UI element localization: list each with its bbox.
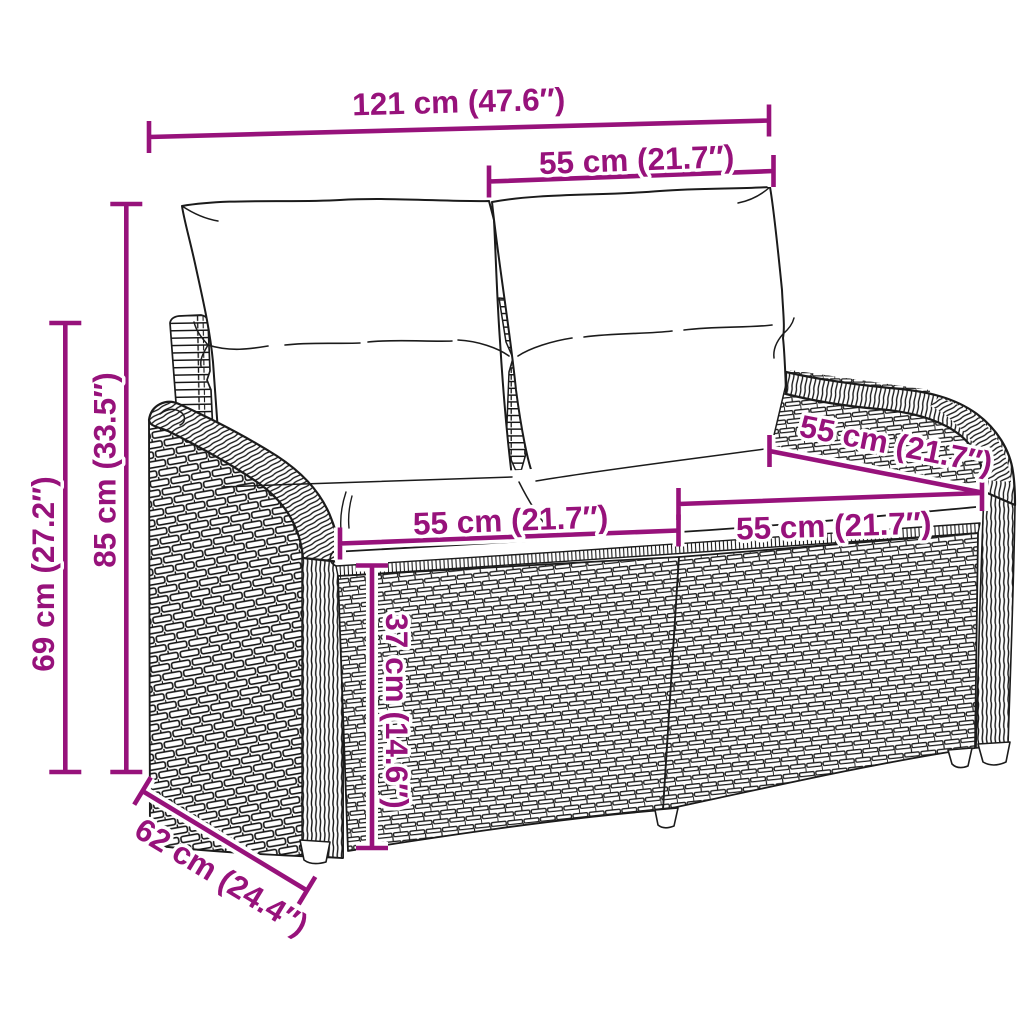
svg-text:55 cm (21.7″): 55 cm (21.7″) (735, 504, 931, 546)
svg-text:85 cm (33.5″): 85 cm (33.5″) (87, 372, 123, 567)
svg-text:121 cm (47.6″): 121 cm (47.6″) (352, 81, 566, 123)
svg-text:55 cm (21.7″): 55 cm (21.7″) (538, 138, 735, 181)
svg-text:55 cm (21.7″): 55 cm (21.7″) (412, 498, 609, 541)
svg-text:69 cm (27.2″): 69 cm (27.2″) (25, 476, 61, 671)
svg-text:37 cm (14.6″): 37 cm (14.6″) (379, 613, 415, 808)
